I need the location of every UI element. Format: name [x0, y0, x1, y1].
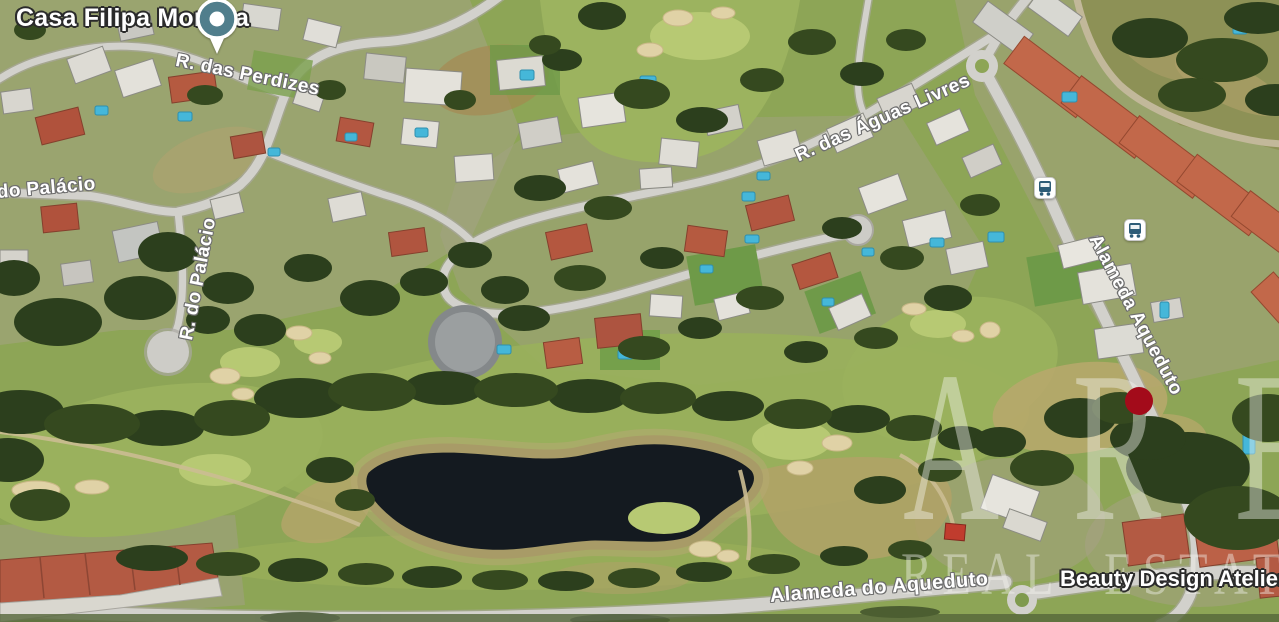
map-viewport[interactable]: ARE REAL ESTATE Casa Filipa Moreira R. d… [0, 0, 1279, 622]
poi-label-beauty-design-atelier[interactable]: Beauty Design Atelier 2 [1060, 566, 1279, 592]
place-pin-icon[interactable] [195, 0, 239, 56]
property-marker-red-dot[interactable] [1125, 387, 1153, 415]
lake [362, 440, 759, 555]
bus-stop-icon[interactable] [1124, 219, 1146, 241]
bus-stop-icon[interactable] [1034, 177, 1056, 199]
